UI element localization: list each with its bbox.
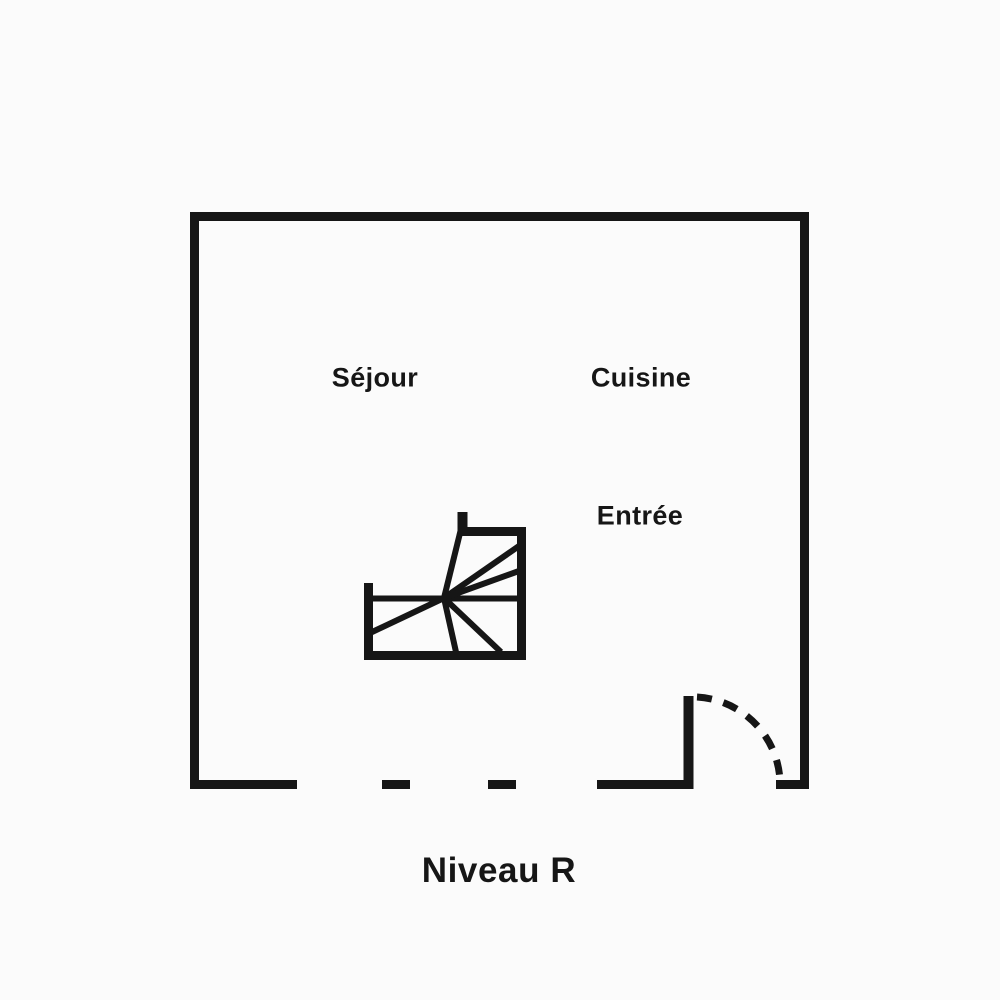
room-label-cuisine: Cuisine <box>591 363 691 394</box>
stairs-icon <box>364 512 526 660</box>
room-label-sejour: Séjour <box>332 363 418 394</box>
level-caption: Niveau R <box>422 851 577 891</box>
stairs-treads <box>370 529 519 652</box>
stair-tread-fan-3 <box>370 598 444 633</box>
room-label-entree: Entrée <box>597 501 683 532</box>
entry-door <box>689 696 781 789</box>
outer-walls <box>190 212 809 789</box>
floor-plan: Séjour Cuisine Entrée Niveau R <box>0 0 1000 1000</box>
floor-plan-drawing <box>0 0 1000 1000</box>
door-swing-arc-icon <box>697 697 780 781</box>
